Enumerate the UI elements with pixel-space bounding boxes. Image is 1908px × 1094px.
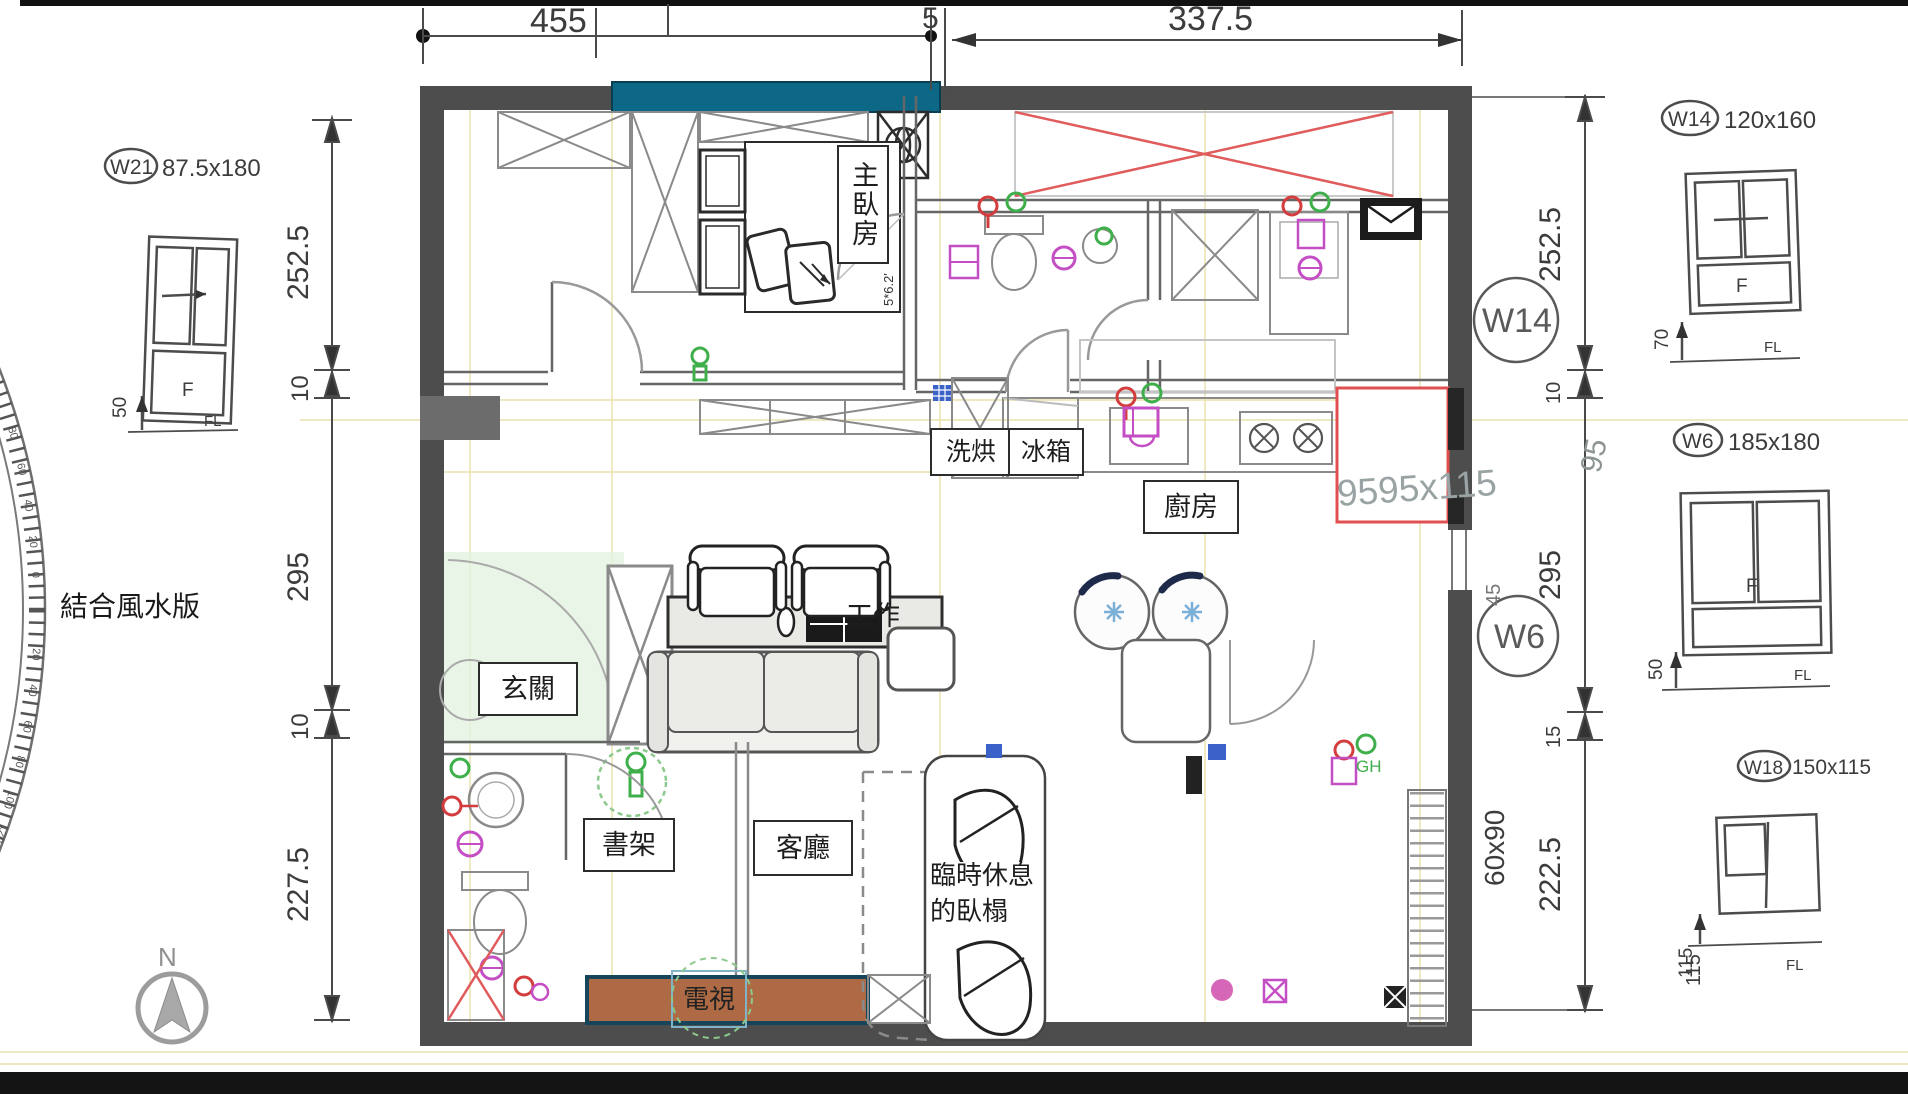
dim-top-455: 455 — [530, 2, 587, 40]
w6-pane: F — [1746, 576, 1758, 597]
w6-sill: 50 — [1646, 659, 1667, 680]
dim-top-5: 5 — [922, 2, 939, 35]
dim-right-222: 222.5 — [1534, 837, 1567, 912]
w21-size: 87.5x180 — [162, 155, 261, 182]
gh-tag: GH — [1356, 757, 1382, 776]
badge-w6: W6 — [1494, 618, 1545, 656]
floor-plan-canvas: 455 5 337.5 252.5 10 295 10 227.5 252.5 … — [0, 0, 1908, 1094]
dim-95: 95 — [1575, 436, 1614, 476]
w14-sill: 70 — [1652, 329, 1673, 350]
w18-tag: W18 — [1744, 758, 1783, 779]
label-fridge: 冰箱 — [1008, 428, 1084, 476]
north-letter: N — [158, 942, 177, 972]
label-kitchen: 廚房 — [1143, 480, 1239, 534]
floor-plan-drawing: 455 5 337.5 252.5 10 295 10 227.5 252.5 … — [0, 0, 1908, 1094]
dim-right-10: 10 — [1543, 382, 1565, 404]
dim-45: 45 — [1483, 584, 1505, 606]
w21-level: FL — [204, 413, 222, 430]
bathroom-right-fixtures — [1172, 193, 1348, 334]
w6-tag: W6 — [1682, 430, 1714, 453]
window-elevation-w21 — [105, 149, 238, 432]
bedroom-green-glyph — [692, 348, 708, 380]
dim-top-337: 337.5 — [1168, 0, 1253, 38]
label-tv: 電視 — [683, 986, 735, 1013]
dim-left-295: 295 — [282, 552, 315, 602]
label-work: 工作 — [846, 602, 900, 630]
dim-left-10a: 10 — [287, 375, 314, 402]
round-chairs — [1075, 575, 1314, 742]
bottom-border-bar — [0, 1072, 1908, 1094]
dim-left-252: 252.5 — [282, 225, 315, 300]
badge-w14: W14 — [1482, 302, 1552, 340]
protractor-tick: 80 — [12, 754, 26, 769]
w18-size: 150x115 — [1792, 756, 1871, 779]
bed-size-text: 5*6.2' — [881, 273, 896, 306]
label-bookshelf: 書架 — [583, 818, 675, 872]
window-elevation-w14 — [1662, 101, 1800, 362]
red-x-closet — [1015, 112, 1393, 196]
blue-outlet-icon — [933, 385, 951, 401]
bathroom-left-fixtures — [950, 193, 1117, 290]
label-master-bedroom: 主臥房 — [837, 145, 889, 264]
dim-right-252: 252.5 — [1534, 207, 1567, 282]
sofa — [648, 652, 878, 752]
label-entry: 玄關 — [478, 662, 578, 716]
label-daybed-line1: 臨時休息 — [928, 862, 1036, 889]
protractor-tick: 60 — [20, 719, 34, 733]
w18-sill: 115 — [1676, 948, 1697, 978]
protractor-tick: 40 — [21, 498, 35, 512]
w6-level: FL — [1794, 667, 1812, 684]
dim-right-15: 15 — [1543, 726, 1565, 748]
w21-pane: F — [182, 380, 194, 401]
north-compass-icon — [138, 974, 206, 1042]
w14-pane: F — [1736, 276, 1748, 297]
w21-tag: W21 — [110, 156, 153, 179]
dim-right-295: 295 — [1534, 550, 1567, 600]
fengshui-note: 結合風水版 — [60, 592, 200, 621]
dim-left-227: 227.5 — [282, 847, 315, 922]
protractor-tick: 20 — [26, 535, 39, 548]
label-living-room: 客廳 — [753, 820, 853, 876]
window-elevation-w18 — [1688, 751, 1822, 946]
w21-sill: 50 — [110, 397, 131, 418]
w18-level: FL — [1786, 957, 1804, 974]
w14-level: FL — [1764, 339, 1782, 356]
protractor-tick: 20 — [29, 648, 42, 661]
envelope-icon — [1360, 198, 1422, 240]
dimension-left — [312, 118, 352, 1022]
bedroom-dresser — [700, 400, 930, 434]
label-daybed-line2: 的臥榻 — [928, 898, 1010, 925]
protractor-tick: 120 — [0, 823, 11, 844]
top-window-teal — [612, 82, 940, 112]
dim-60x90: 60x90 — [1479, 810, 1510, 886]
protractor-tick: 0 — [29, 572, 41, 579]
kitchen-sink-faucet — [1117, 384, 1161, 446]
label-washer-dryer: 洗烘 — [930, 428, 1012, 476]
right-wall-symbols — [986, 735, 1406, 1008]
w14-size: 120x160 — [1724, 107, 1816, 134]
hatch-strip — [1408, 790, 1446, 1026]
protractor-tick: 40 — [26, 684, 39, 697]
right-wall-openings — [1448, 530, 1472, 590]
window-elevation-w6 — [1662, 424, 1831, 690]
w6-size: 185x180 — [1728, 429, 1820, 456]
ottoman — [888, 628, 954, 690]
top-border-bar — [20, 0, 1908, 6]
dim-left-10b: 10 — [287, 713, 314, 740]
w14-tag: W14 — [1668, 108, 1712, 131]
